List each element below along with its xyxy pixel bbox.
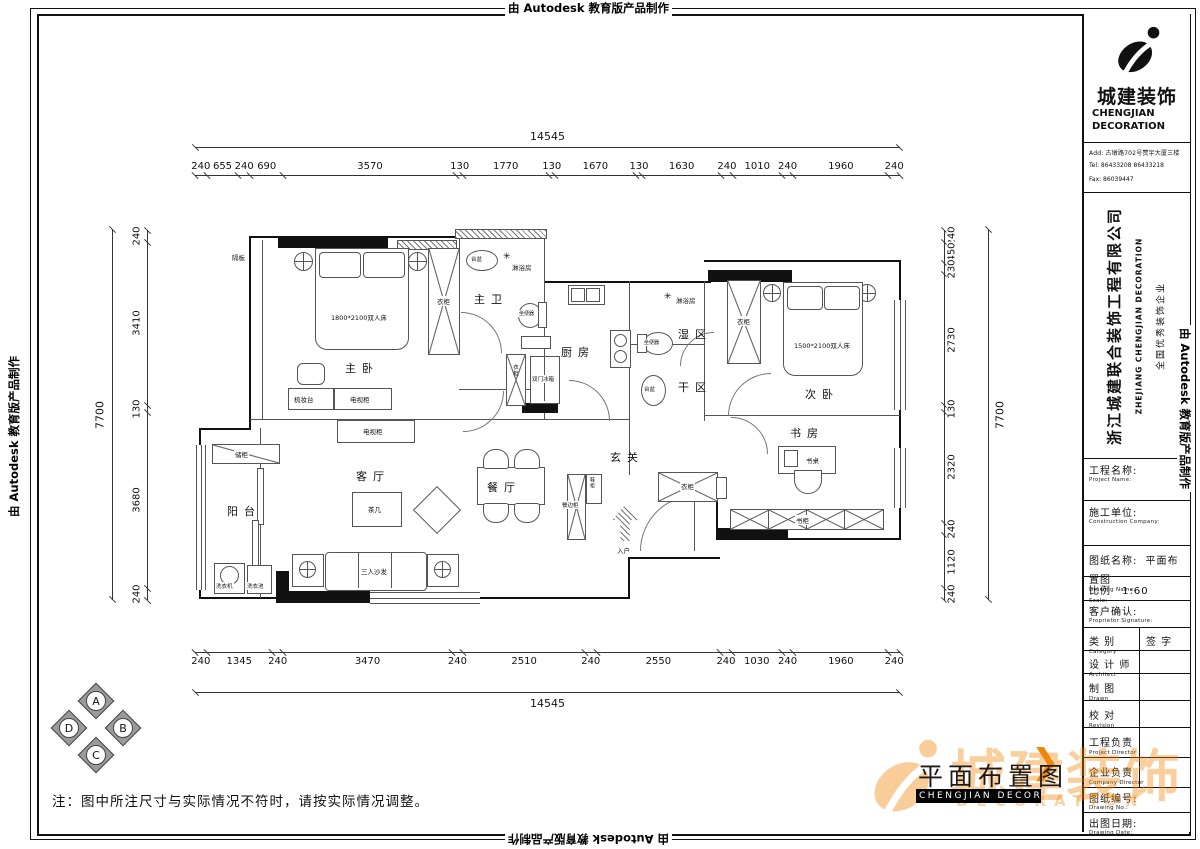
- row-label-cn: 类 别: [1089, 637, 1115, 648]
- dim-label: 230: [947, 258, 958, 279]
- dim-total-right: 7700: [994, 401, 1007, 429]
- tb-row-construction-company: 施工单位: Construction Company:: [1084, 500, 1190, 545]
- dim-total-bottom: 14545: [195, 697, 900, 710]
- wall: [262, 240, 263, 420]
- brand-name-en1: CHENGJIAN: [1092, 108, 1155, 119]
- signature-header: 签 字: [1146, 633, 1172, 648]
- washer-label: 洗衣机: [215, 582, 234, 590]
- room-label-balcony: 阳台: [227, 503, 261, 519]
- dim-chain-bottom: 2401345240347024025102402550240103024019…: [195, 650, 900, 670]
- compass-letter: B: [113, 718, 133, 738]
- dim-line-left-total: [112, 230, 113, 600]
- shoe-cabinet-label: 鞋柜: [589, 477, 596, 489]
- title-block: 城建装饰 CHENGJIAN DECORATION Add: 古墩路702号赞宇…: [1082, 14, 1190, 832]
- dim-label: 240: [234, 161, 255, 172]
- contact-address: Add: 古墩路702号赞宇大厦三楼: [1089, 148, 1180, 157]
- burner: [614, 334, 627, 347]
- sink-bowl: [586, 288, 600, 302]
- wall: [199, 428, 251, 430]
- basin-label: 台盆: [643, 385, 656, 393]
- tb-row-project-name: 工程名称: Project Name:: [1084, 458, 1190, 500]
- dim-label: 240: [190, 161, 211, 172]
- row-label-cn: 客户确认:: [1089, 603, 1185, 618]
- drawing-title: 平面布置图: [918, 757, 1068, 793]
- dim-label: 1030: [743, 656, 770, 667]
- row-label-cn: 图纸名称:: [1089, 556, 1137, 567]
- ceiling-light-icon: [763, 284, 781, 302]
- dim-label: 240: [447, 656, 468, 667]
- window: [196, 445, 206, 590]
- ceiling-light-icon: [408, 252, 427, 271]
- tea-table-label: 茶几: [368, 504, 381, 514]
- cell-divider: [1139, 674, 1140, 700]
- shower-room-label: 淋浴房: [512, 262, 532, 272]
- dim-label: 2550: [645, 656, 672, 667]
- solid-wall: [278, 237, 388, 248]
- window: [894, 300, 906, 410]
- dim-label: 240: [947, 584, 958, 605]
- dim-label: 240: [132, 225, 143, 246]
- bookcase-cell: [844, 509, 884, 530]
- wardrobe-hall: [506, 354, 526, 406]
- wall: [630, 557, 720, 559]
- bookcase-cell: [730, 509, 770, 530]
- dim-label: 1960: [827, 656, 854, 667]
- toilet-label: 坐便器: [643, 339, 660, 346]
- contact-fax: Fax: 86039447: [1089, 176, 1134, 183]
- wall: [629, 420, 630, 475]
- tb-row-category-header: 类 别 Category 签 字: [1084, 627, 1190, 650]
- tb-row-project-director: 工程负责 Project Director: [1084, 727, 1190, 757]
- room-label-wet: 湿区: [678, 326, 712, 342]
- autodesk-stamp-bottom: 由 Autodesk 教育版产品制作: [505, 831, 672, 847]
- dim-label: 240: [267, 656, 288, 667]
- compass-letter: A: [86, 691, 106, 711]
- scale-value: 1:60: [1122, 586, 1148, 597]
- sideboard-label: 餐边柜: [561, 501, 580, 509]
- dim-line-bottom-total: [195, 692, 900, 693]
- dim-line-right-total: [988, 230, 989, 600]
- row-label-en: Project Name:: [1089, 477, 1185, 484]
- basin-label: 台盆: [470, 255, 483, 263]
- dim-label: 130: [628, 161, 649, 172]
- dim-label: 130: [947, 398, 958, 419]
- room-label-study: 书房: [790, 425, 824, 441]
- dim-label: 240: [580, 656, 601, 667]
- title-block-logo-section: 城建装饰 CHENGJIAN DECORATION: [1084, 14, 1190, 142]
- row-label-cn: 企业负责: [1089, 768, 1133, 779]
- burner: [614, 350, 627, 363]
- dim-chain-top: 2406552406903570130177013016701301630240…: [195, 161, 900, 178]
- door-leaf-entry: [694, 497, 695, 551]
- armchair-cushion-icon: [434, 561, 451, 578]
- title-block-contact: Add: 古墩路702号赞宇大厦三楼 Tel: 86433208 8643321…: [1084, 142, 1190, 192]
- room-label-second: 次卧: [805, 386, 839, 402]
- dim-label: 1120: [947, 548, 958, 575]
- company-name-en: ZHEJIANG CHENGJIAN DECORATION: [1135, 238, 1144, 415]
- dim-label: 240: [947, 518, 958, 539]
- room-label-living: 客厅: [356, 468, 390, 484]
- brand-name-en2: DECORATION: [1092, 121, 1165, 132]
- wall: [545, 281, 711, 283]
- row-label-cn: 出图日期:: [1089, 815, 1185, 830]
- dim-label: 130: [132, 398, 143, 419]
- shelf-label: 隔板: [232, 252, 245, 262]
- tb-row-architect: 设 计 师 Architect: [1084, 650, 1190, 673]
- wall: [628, 557, 630, 599]
- dim-label: 240: [190, 656, 211, 667]
- tb-row-drawing-name: 图纸名称: 平面布置图 Drawing Name:: [1084, 545, 1190, 576]
- row-label-cn: 施工单位:: [1089, 504, 1185, 519]
- bed-master-label: 1800*2100双人床: [330, 312, 388, 322]
- dim-label: 2730: [947, 326, 958, 353]
- row-label-cn: 图纸编号:: [1089, 790, 1185, 805]
- tb-row-drawing-date: 出图日期: Drawing Date:: [1084, 812, 1190, 832]
- compass-letter: C: [86, 745, 106, 765]
- dim-chain-left: 24034101303680240: [132, 230, 150, 600]
- company-slogan: 全国优秀装饰企业: [1154, 282, 1167, 370]
- dim-label: 1670: [582, 161, 609, 172]
- row-label-cn: 工程负责: [1089, 738, 1133, 749]
- dim-label: 240: [884, 161, 905, 172]
- shower-symbol-icon: ✳: [503, 252, 511, 262]
- wardrobe-label: 衣柜: [436, 296, 451, 306]
- drawing-title-band: CHENGJIAN DECORATION: [916, 789, 1041, 803]
- room-label-foyer: 玄关: [610, 449, 644, 465]
- cell-divider: [1139, 728, 1140, 757]
- dining-chair: [514, 449, 540, 469]
- dim-label: 655: [212, 161, 233, 172]
- row-label-en: Company Director: [1089, 780, 1144, 787]
- desk-label: 书桌: [806, 455, 819, 465]
- brand-name-cn: 城建装饰: [1084, 82, 1190, 109]
- dim-label: 240: [715, 656, 736, 667]
- pillow: [319, 252, 361, 278]
- storage-label: 储柜: [234, 449, 249, 459]
- compass-letter: D: [59, 718, 79, 738]
- dim-label: 690: [256, 161, 277, 172]
- shoe-cabinet-small: [716, 477, 727, 499]
- dim-label: 240: [777, 161, 798, 172]
- sofa-seam: [358, 553, 359, 588]
- wardrobe-label: 衣柜: [511, 364, 519, 377]
- room-label-master-bath: 主卫: [474, 291, 508, 307]
- contact-tel: Tel: 86433208 86433218: [1089, 162, 1164, 169]
- dim-label: 240: [716, 161, 737, 172]
- window: [894, 448, 906, 508]
- brand-logo-icon: [1110, 22, 1168, 80]
- row-label-cn: 校 对: [1089, 711, 1115, 722]
- solid-wall: [276, 591, 370, 603]
- dim-label: 1345: [225, 656, 252, 667]
- bath-cabinet: [521, 336, 551, 349]
- dim-label: 130: [449, 161, 470, 172]
- tb-row-company-director: 企业负责 Company Director: [1084, 757, 1190, 787]
- autodesk-stamp-left: 由 Autodesk 教育版产品制作: [6, 353, 22, 520]
- autodesk-stamp-top: 由 Autodesk 教育版产品制作: [505, 0, 672, 16]
- pillow: [824, 286, 860, 310]
- dim-label: 1960: [827, 161, 854, 172]
- laundry-sink-label: 洗衣池: [246, 582, 265, 590]
- cell-divider: [1139, 701, 1140, 727]
- dim-label: 1770: [492, 161, 519, 172]
- dim-label: 130: [541, 161, 562, 172]
- room-label-dining: 餐厅: [487, 479, 521, 495]
- dim-label: 1630: [668, 161, 695, 172]
- tv-cabinet-label: 电视柜: [363, 426, 383, 436]
- sofa-label: 三人沙发: [360, 566, 388, 576]
- ceiling-light-icon: [294, 252, 313, 271]
- dim-label: 3680: [132, 486, 143, 513]
- toilet-label: 坐便器: [518, 310, 535, 317]
- wardrobe-label: 衣柜: [736, 316, 751, 326]
- dim-label: 240: [132, 584, 143, 605]
- armchair-cushion-icon: [299, 561, 316, 578]
- wardrobe-label: 衣柜: [680, 481, 695, 491]
- dim-label: 3470: [354, 656, 381, 667]
- fridge-label: 双门冰箱: [531, 375, 555, 383]
- bookcase-label: 书柜: [795, 515, 810, 525]
- tb-row-drawn: 制 图 Drawn: [1084, 673, 1190, 700]
- sink-bowl: [571, 288, 585, 302]
- entry-label: 入户: [617, 545, 630, 555]
- room-label-dry: 干区: [678, 379, 712, 395]
- room-label-kitchen: 厨房: [561, 344, 595, 360]
- tb-row-revision: 校 对 Revision: [1084, 700, 1190, 727]
- cell-divider: [1139, 628, 1140, 650]
- shower-symbol-icon: ✳: [664, 292, 672, 302]
- dim-label: 3570: [356, 161, 383, 172]
- dim-label: 240: [884, 656, 905, 667]
- wall: [249, 236, 251, 430]
- dim-line-top-total: [195, 147, 900, 148]
- pillow: [787, 286, 823, 310]
- pillow: [363, 252, 405, 278]
- dim-label: 240: [777, 656, 798, 667]
- dim-label: 1010: [744, 161, 771, 172]
- dim-total-top: 14545: [195, 130, 900, 143]
- sofa-seam: [391, 553, 392, 588]
- row-label-en: Drawing No.:: [1089, 805, 1185, 812]
- dim-label: 2510: [510, 656, 537, 667]
- bed-second-label: 1500*2100双人床: [793, 340, 851, 350]
- dim-total-left: 7700: [94, 401, 107, 429]
- tb-row-drawing-no: 图纸编号: Drawing No.:: [1084, 787, 1190, 812]
- autodesk-stamp-right: 由 Autodesk 教育版产品制作: [1177, 325, 1193, 492]
- dim-chain-right: 240450230273013023202401120240: [942, 230, 960, 600]
- dresser-label: 梳妆台: [294, 394, 314, 404]
- tv-cabinet-label: 电视柜: [350, 394, 370, 404]
- row-label-en: Proprietor Signature:: [1089, 618, 1185, 625]
- title-block-company: 浙江城建联合装饰工程有限公司 ZHEJIANG CHENGJIAN DECORA…: [1084, 192, 1190, 458]
- window: [370, 592, 480, 604]
- company-name-cn: 浙江城建联合装饰工程有限公司: [1104, 207, 1125, 445]
- window-hatch: [455, 229, 547, 239]
- tb-row-scale: 比例 1:60 Scale:: [1084, 576, 1190, 600]
- tb-row-proprietor: 客户确认: Proprietor Signature:: [1084, 600, 1190, 627]
- row-label-cn: 制 图: [1089, 684, 1115, 695]
- room-label-master: 主卧: [345, 360, 379, 376]
- toilet-tank: [538, 302, 547, 328]
- dim-label: 3410: [132, 310, 143, 337]
- bookcase-cell: [806, 509, 846, 530]
- row-label-cn: 比例: [1089, 586, 1111, 597]
- dining-chair: [483, 449, 509, 469]
- row-label-en: Drawing Date:: [1089, 830, 1185, 837]
- nightstand: [297, 363, 325, 385]
- note-text: 注：图中所注尺寸与实际情况不符时，请按实际情况调整。: [52, 790, 429, 810]
- row-label-cn: 工程名称:: [1089, 462, 1185, 477]
- wall: [704, 260, 901, 262]
- desk-monitor: [784, 450, 798, 467]
- dim-label: 2320: [947, 454, 958, 481]
- row-label-cn: 设 计 师: [1089, 660, 1130, 671]
- shower-room-label: 淋浴房: [676, 295, 696, 305]
- cell-divider: [1139, 651, 1140, 673]
- solid-wall: [522, 403, 558, 413]
- row-label-en: Construction Company:: [1089, 519, 1185, 526]
- row-label-en: Project Director: [1089, 750, 1136, 757]
